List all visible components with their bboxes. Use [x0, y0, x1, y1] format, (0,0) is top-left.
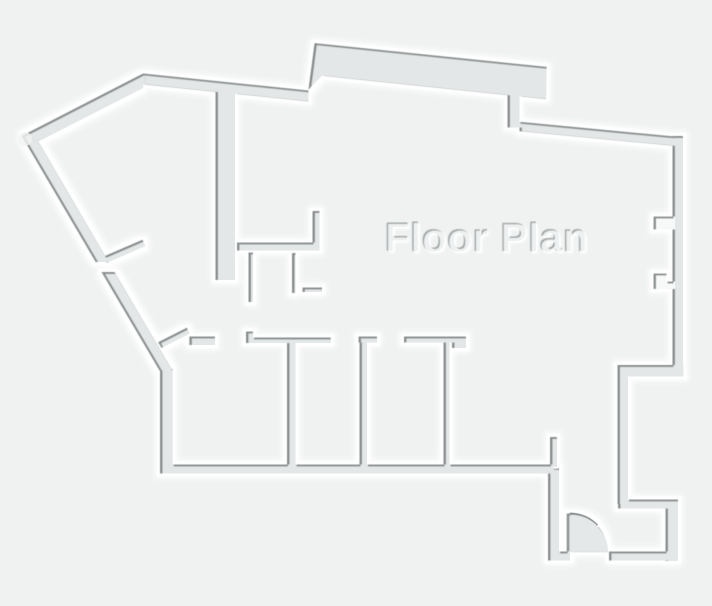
svg-text:Floor Plan: Floor Plan — [384, 214, 587, 260]
